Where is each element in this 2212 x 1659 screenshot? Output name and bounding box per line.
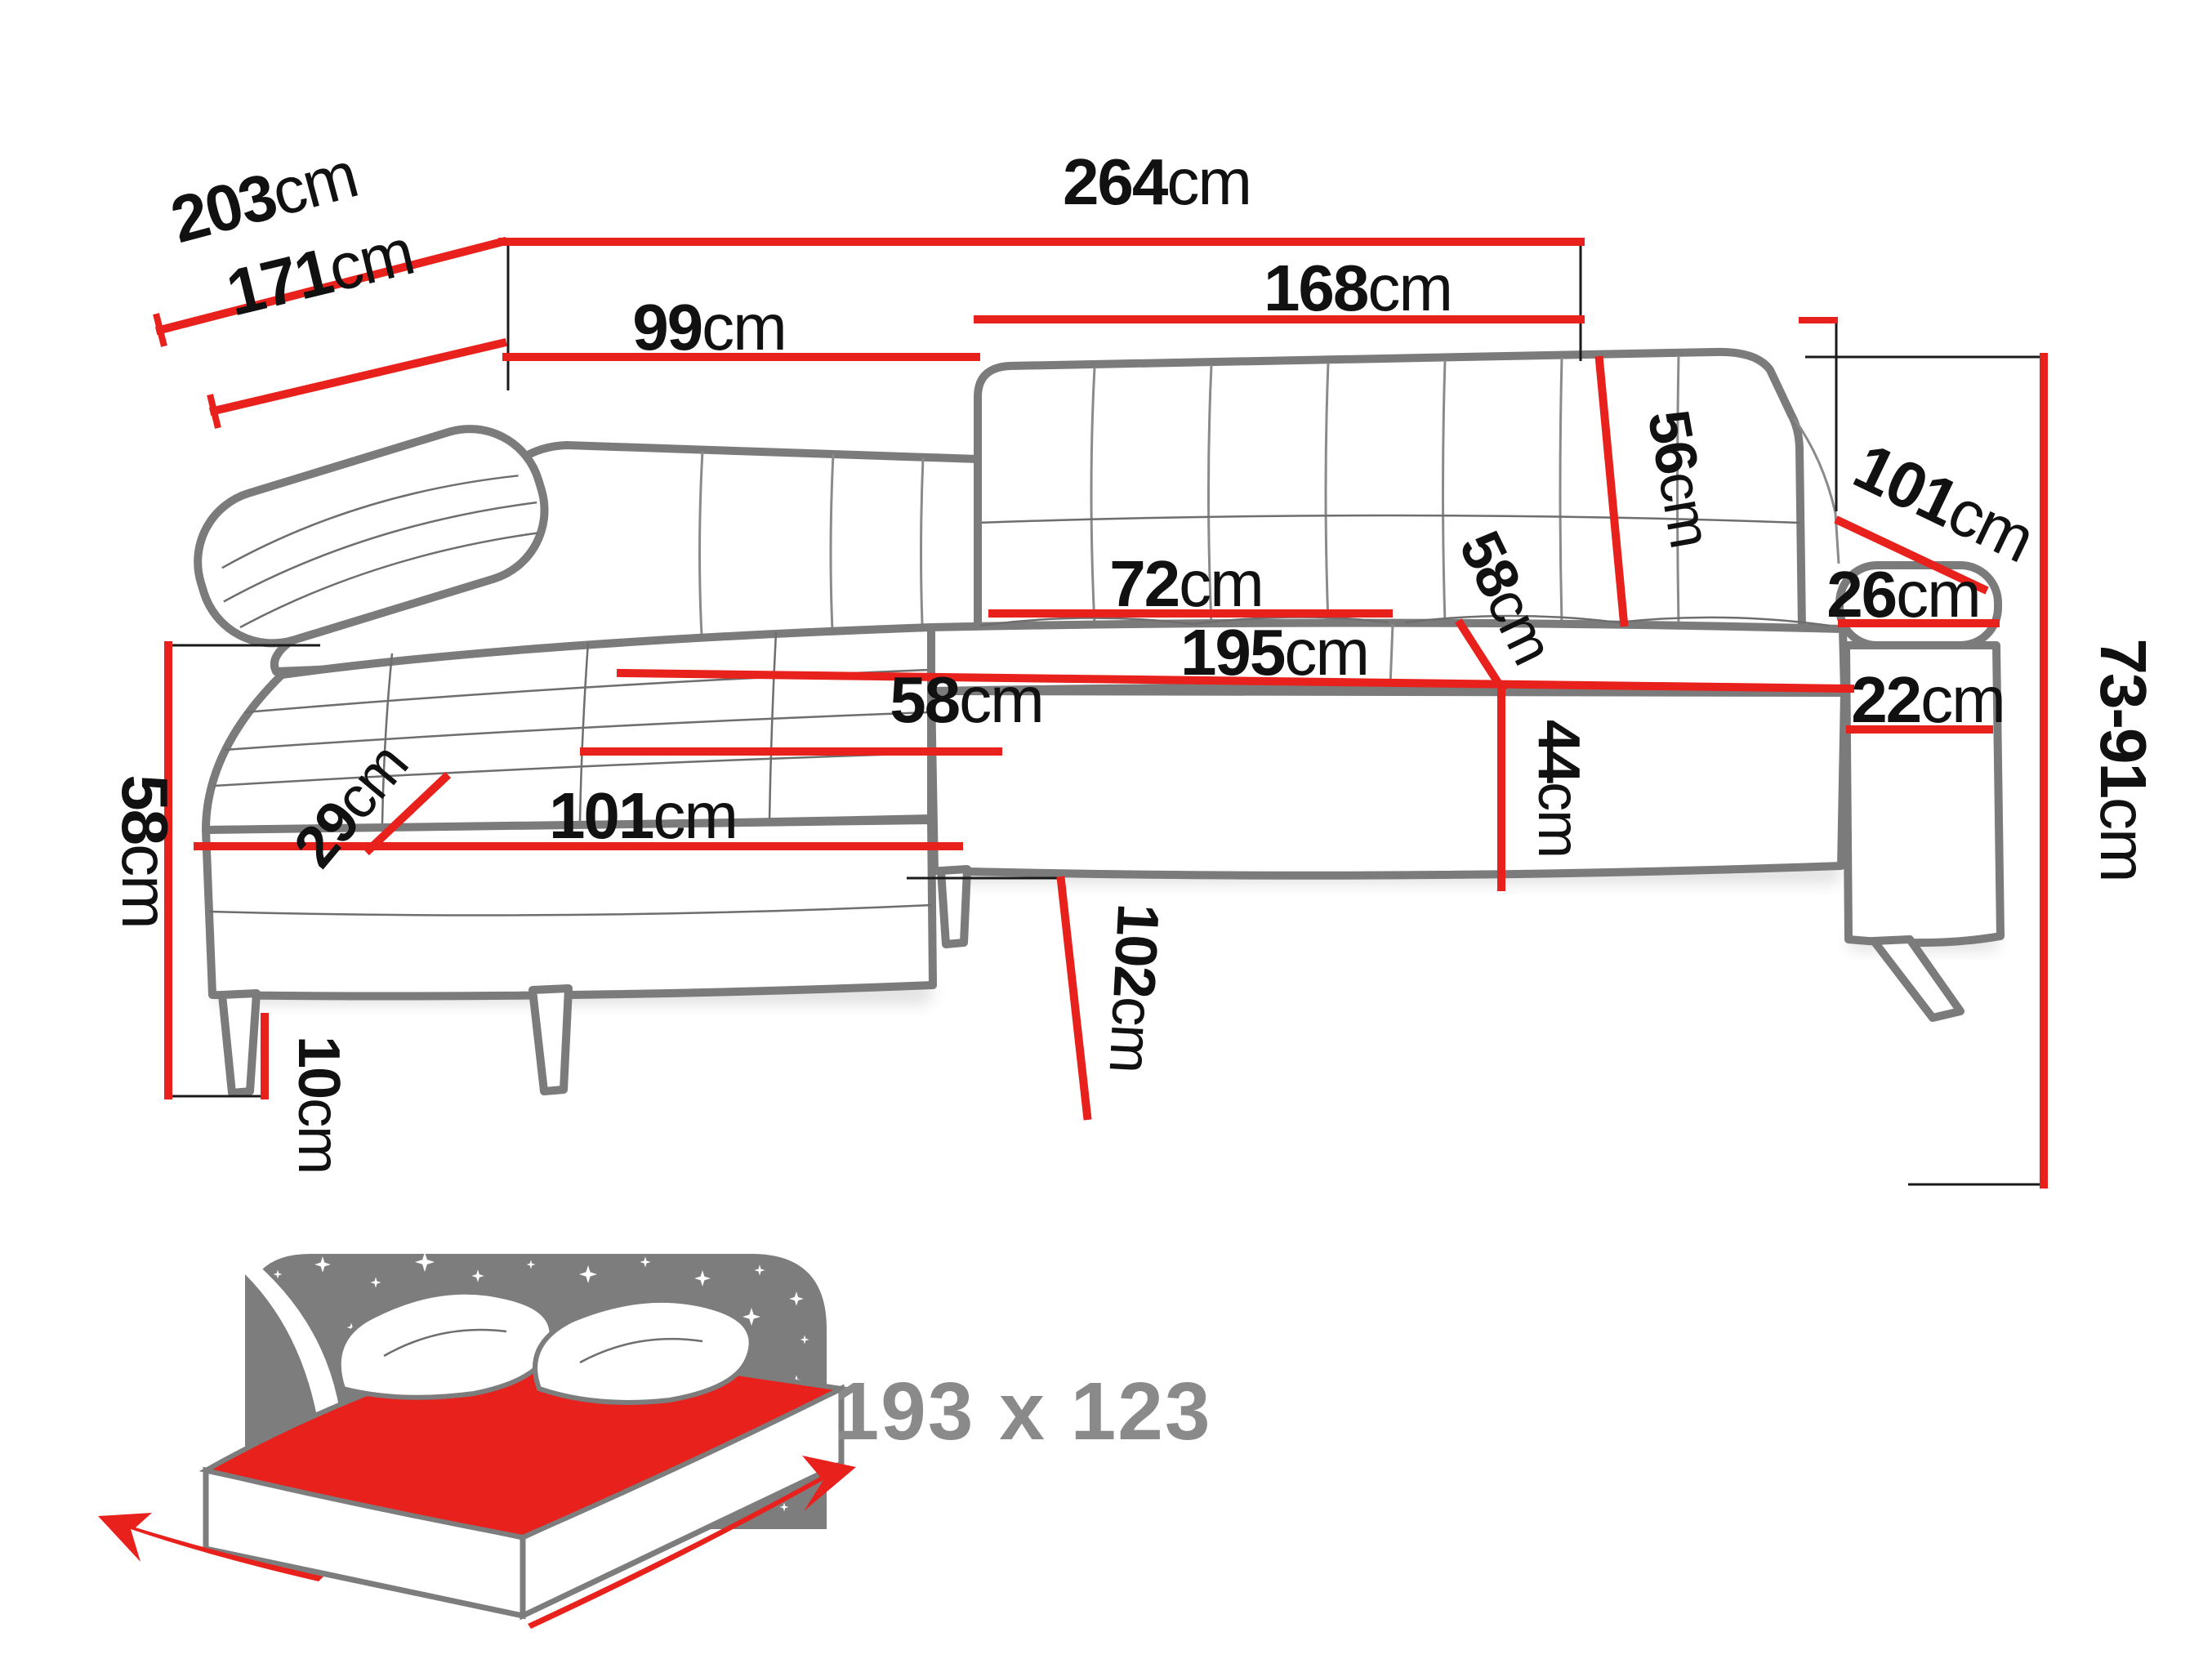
sofa-drawing: [180, 352, 2000, 1093]
chaise-leg-left: [222, 993, 256, 1093]
dim-99cm-label: 99cm: [632, 291, 786, 363]
dim-73-91cm-label: 73-91cm: [2087, 638, 2160, 881]
dim-58cm-horiz-label: 58cm: [890, 663, 1043, 736]
dim-101cm-right-label: 101cm: [1844, 429, 2045, 575]
dim-102cm-label: 102cm: [1097, 902, 1171, 1073]
dim-72cm-label: 72cm: [1109, 547, 1263, 620]
dim-203cm-tick: [157, 317, 163, 343]
dim-22cm-label: 22cm: [1851, 663, 2005, 736]
arm-leg: [1874, 939, 1960, 1018]
bed-size-label: 193 x 123: [834, 1366, 1212, 1457]
dim-10cm-label: 10cm: [286, 1036, 351, 1173]
dim-264cm-label: 264cm: [1063, 145, 1251, 218]
sofa-dimension-diagram: 264cm 203cm 171cm 99cm 168cm 56cm 101cm …: [0, 0, 2212, 1659]
dim-26cm-label: 26cm: [1826, 558, 1980, 631]
base-right: [931, 691, 1844, 876]
chaise-leg-right: [533, 988, 569, 1091]
dim-58cm-left-label: 58cm: [109, 774, 181, 928]
bed-icon: 193 x 123: [98, 1252, 1211, 1629]
dim-44cm-label: 44cm: [1526, 720, 1591, 857]
dim-101cm-left-label: 101cm: [549, 779, 737, 852]
dim-195cm-label: 195cm: [1180, 616, 1368, 689]
dim-102cm-line: [1061, 881, 1087, 1116]
base-leg: [941, 869, 967, 944]
dim-168cm-label: 168cm: [1264, 252, 1452, 324]
dim-171cm-line: [214, 343, 502, 411]
dim-171cm-tick: [211, 398, 217, 425]
